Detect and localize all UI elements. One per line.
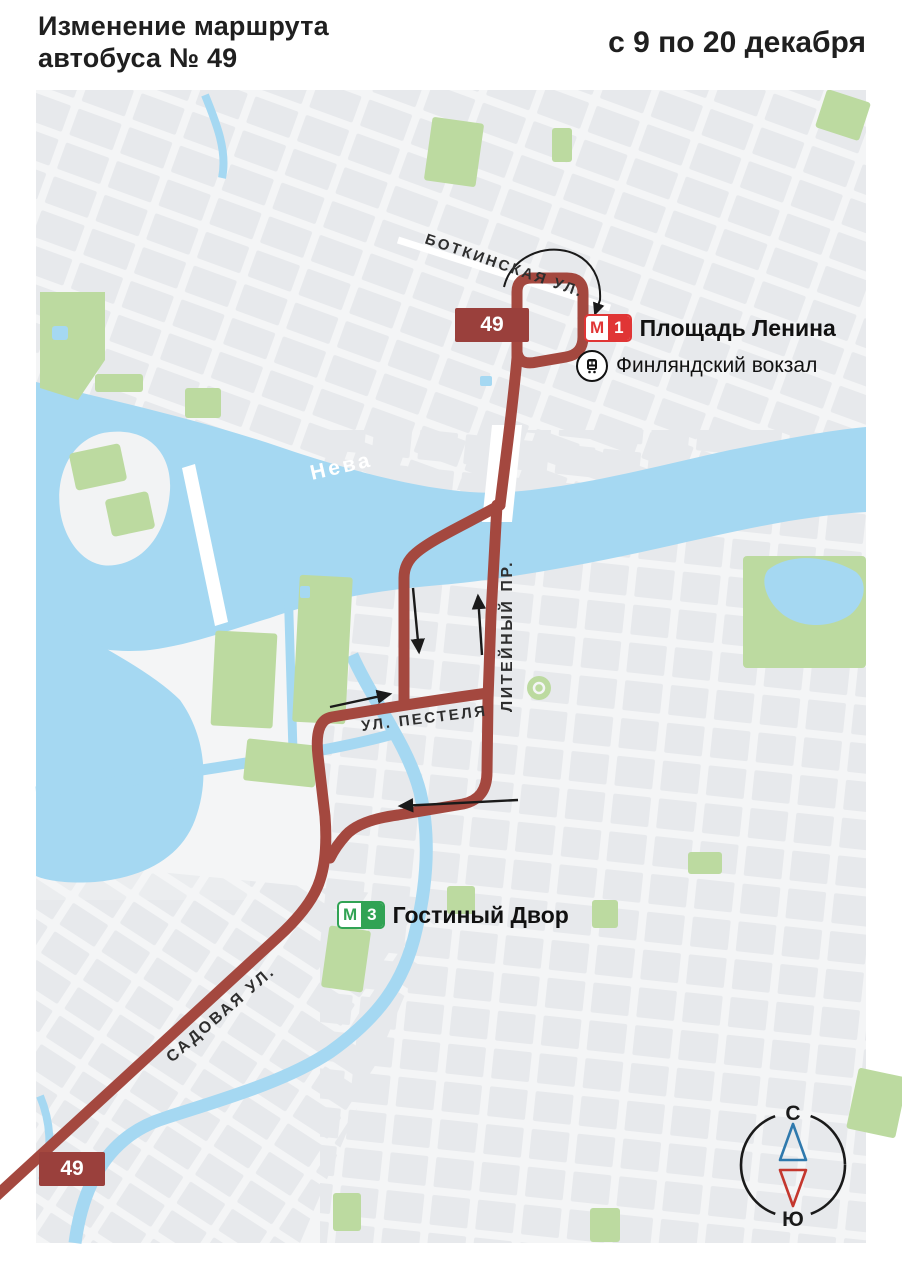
route-change-poster: БОТКИНСКАЯ УЛ. ЛИТЕЙНЫЙ ПР. УЛ. ПЕСТЕЛЯ …	[0, 0, 902, 1280]
station-name: Финляндский вокзал	[616, 354, 817, 378]
metro-logo: М	[339, 903, 361, 927]
station-name: Гостиный Двор	[393, 902, 569, 929]
street-label-liteyny: ЛИТЕЙНЫЙ ПР.	[497, 560, 516, 712]
metro-line3-icon: М 3	[337, 901, 385, 929]
route-49-badge-top-label: 49	[480, 313, 503, 337]
lebyazhya-canal	[288, 582, 293, 752]
compass-north-label: С	[785, 1102, 800, 1125]
poster-title-line1: Изменение маршрута	[38, 10, 329, 42]
city-map: БОТКИНСКАЯ УЛ. ЛИТЕЙНЫЙ ПР. УЛ. ПЕСТЕЛЯ …	[0, 0, 902, 1280]
compass-south-label: Ю	[782, 1208, 804, 1231]
station-finlyandsky: Финляндский вокзал	[576, 350, 817, 382]
metro-line-number: 3	[361, 903, 382, 927]
route-49-badge-top: 49	[455, 308, 529, 342]
station-gostiny-dvor: М 3 Гостиный Двор	[337, 901, 569, 929]
poster-dates: с 9 по 20 декабря	[608, 26, 866, 60]
poster-title-line2: автобуса № 49	[38, 42, 329, 74]
poster-title: Изменение маршрута автобуса № 49	[38, 10, 329, 74]
map-blocks	[36, 90, 866, 1243]
route-49-badge-bottom-label: 49	[60, 1157, 83, 1181]
station-ploshchad-lenina: М 1 Площадь Ленина	[584, 314, 836, 342]
route-49-badge-bottom: 49	[39, 1152, 105, 1186]
station-name: Площадь Ленина	[640, 315, 836, 342]
metro-line-number: 1	[608, 316, 629, 340]
header: Изменение маршрута автобуса № 49 с 9 по …	[0, 0, 902, 90]
metro-line1-icon: М 1	[584, 314, 632, 342]
metro-logo: М	[586, 316, 608, 340]
railway-station-icon	[576, 350, 608, 382]
